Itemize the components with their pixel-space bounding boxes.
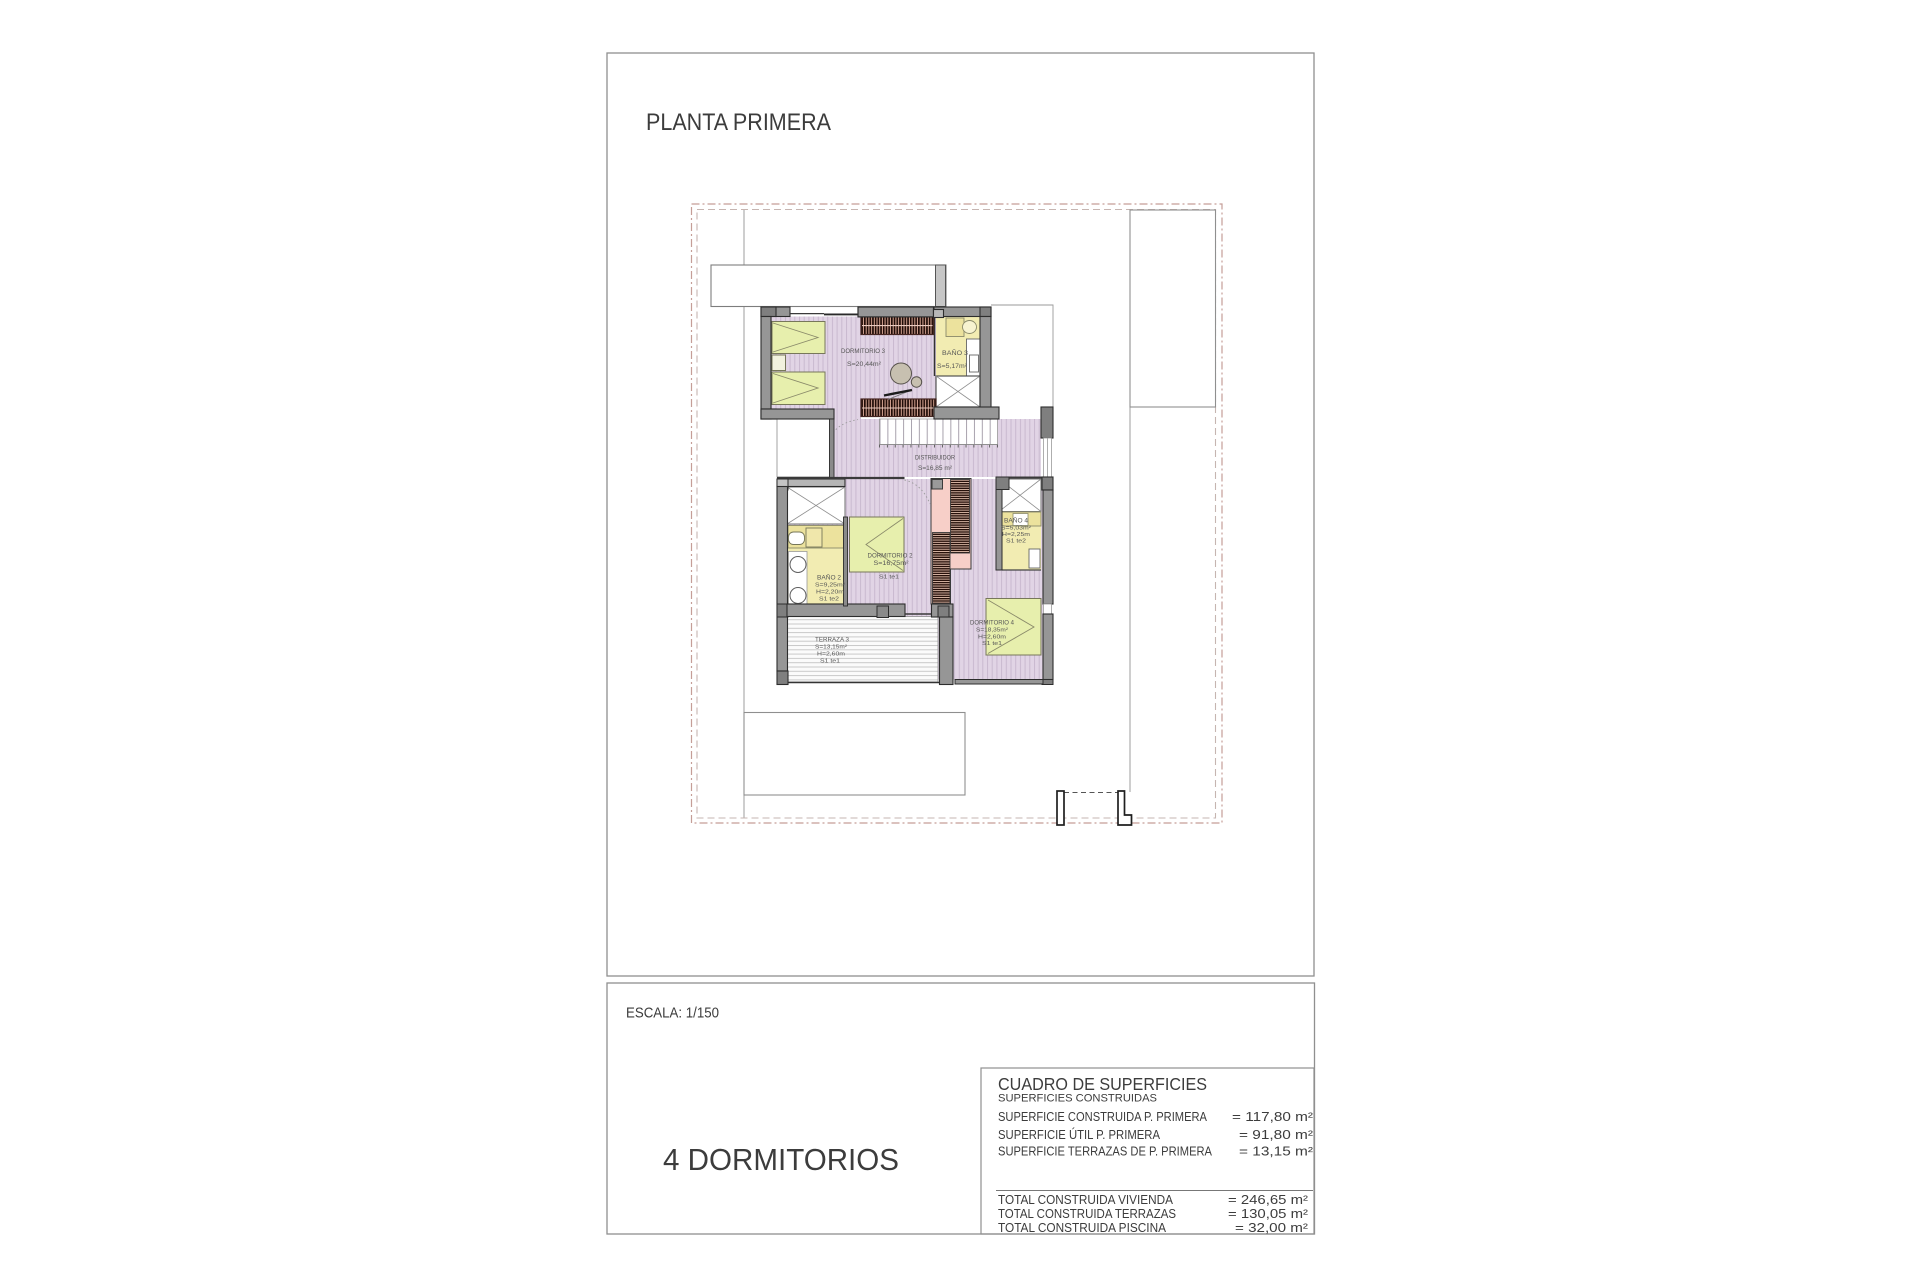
svg-text:S=16,75m²: S=16,75m² [874, 560, 909, 567]
svg-text:DORMITORIO 3: DORMITORIO 3 [841, 348, 885, 355]
svg-text:TOTAL CONSTRUIDA TERRAZAS: TOTAL CONSTRUIDA TERRAZAS [998, 1207, 1176, 1221]
svg-text:TOTAL CONSTRUIDA PISCINA: TOTAL CONSTRUIDA PISCINA [998, 1221, 1167, 1235]
svg-text:ESCALA: 1/150: ESCALA: 1/150 [626, 1006, 719, 1022]
svg-text:= 91,80 m²: = 91,80 m² [1239, 1128, 1313, 1142]
svg-text:= 32,00 m²: = 32,00 m² [1235, 1221, 1308, 1235]
svg-text:= 130,05 m²: = 130,05 m² [1228, 1207, 1308, 1221]
svg-text:SUPERFICIE CONSTRUIDA P. PRIME: SUPERFICIE CONSTRUIDA P. PRIMERA [998, 1110, 1208, 1124]
svg-text:H=2,20m: H=2,20m [816, 590, 844, 596]
svg-text:TOTAL CONSTRUIDA VIVIENDA: TOTAL CONSTRUIDA VIVIENDA [998, 1193, 1174, 1207]
svg-text:BAÑO 2: BAÑO 2 [817, 573, 842, 582]
svg-text:SUPERFICIE ÚTIL P. PRIMERA: SUPERFICIE ÚTIL P. PRIMERA [998, 1127, 1161, 1142]
svg-text:S=20,44m²: S=20,44m² [847, 361, 881, 368]
svg-text:S1 te2: S1 te2 [819, 597, 839, 603]
svg-text:BAÑO 4: BAÑO 4 [1004, 516, 1029, 525]
svg-text:H=2,60m: H=2,60m [817, 652, 845, 658]
svg-text:SUPERFICIE TERRAZAS DE P. PRIM: SUPERFICIE TERRAZAS DE P. PRIMERA [998, 1145, 1213, 1159]
svg-text:PLANTA PRIMERA: PLANTA PRIMERA [646, 109, 831, 136]
svg-text:DORMITORIO 4: DORMITORIO 4 [970, 620, 1014, 627]
svg-text:BAÑO 3: BAÑO 3 [942, 348, 969, 357]
svg-text:S=18,35m²: S=18,35m² [976, 628, 1008, 634]
svg-text:= 13,15 m²: = 13,15 m² [1239, 1145, 1313, 1159]
svg-text:S=13,15m²: S=13,15m² [815, 645, 847, 651]
svg-text:DISTRIBUIDOR: DISTRIBUIDOR [915, 455, 955, 462]
svg-text:CUADRO DE SUPERFICIES: CUADRO DE SUPERFICIES [998, 1074, 1207, 1094]
svg-text:S1 te1: S1 te1 [820, 659, 840, 665]
svg-text:S=16,85 m²: S=16,85 m² [918, 465, 952, 472]
svg-text:H=2,60m: H=2,60m [978, 635, 1006, 641]
svg-text:DORMITORIO 2: DORMITORIO 2 [868, 553, 913, 560]
svg-text:S=9,25m²: S=9,25m² [815, 583, 845, 589]
svg-text:SUPERFICIES CONSTRUIDAS: SUPERFICIES CONSTRUIDAS [998, 1093, 1157, 1105]
svg-text:S=5,03m²: S=5,03m² [1001, 526, 1031, 532]
svg-text:S=5,17m²: S=5,17m² [937, 363, 967, 370]
svg-text:TERRAZA 3: TERRAZA 3 [815, 637, 849, 644]
svg-text:S1 te2: S1 te2 [1006, 539, 1026, 545]
svg-text:S1 te1: S1 te1 [879, 575, 899, 581]
svg-text:= 117,80 m²: = 117,80 m² [1232, 1110, 1313, 1124]
svg-text:H=2,25m: H=2,25m [1002, 532, 1030, 538]
svg-text:S1 te1: S1 te1 [982, 641, 1002, 647]
svg-text:= 246,65 m²: = 246,65 m² [1228, 1193, 1308, 1207]
svg-text:4 DORMITORIOS: 4 DORMITORIOS [663, 1142, 899, 1177]
